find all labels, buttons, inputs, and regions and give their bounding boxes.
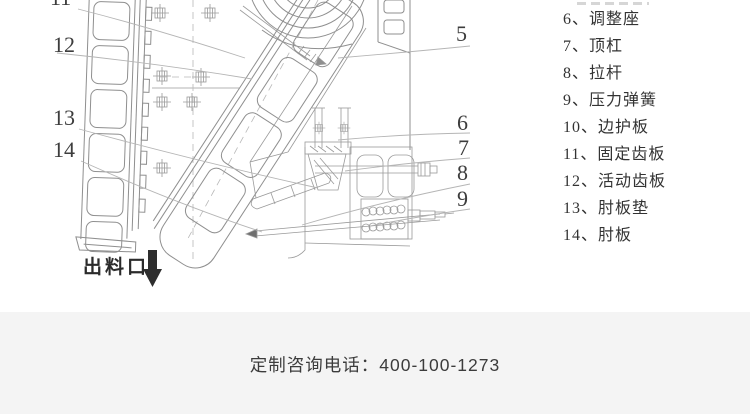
fixed-jaw-frame xyxy=(75,0,152,253)
callout-7: 7 xyxy=(458,137,469,159)
parts-list-item: 8、拉杆 xyxy=(563,60,748,87)
parts-list-item: 6、调整座 xyxy=(563,6,748,33)
leader-lines xyxy=(57,9,470,232)
callout-5: 5 xyxy=(456,23,467,45)
consultation-phone: 定制咨询电话：400-100-1273 xyxy=(0,352,750,377)
page: 11 12 13 14 5 6 7 8 9 出料口 6、调整座 7、顶杠 8、拉… xyxy=(0,0,750,414)
callout-12: 12 xyxy=(53,34,75,56)
callout-14: 14 xyxy=(53,139,75,161)
frame-right xyxy=(378,0,410,150)
callout-8: 8 xyxy=(457,162,468,184)
footer-bar: 定制咨询电话：400-100-1273 xyxy=(0,312,750,414)
discharge-port-label: 出料口 xyxy=(83,252,149,279)
parts-list-item: 7、顶杠 xyxy=(563,33,748,60)
callout-11: 11 xyxy=(50,0,71,9)
callout-6: 6 xyxy=(457,112,468,134)
flywheel xyxy=(248,0,368,49)
construction-lines xyxy=(160,0,318,262)
adjusting-mechanism xyxy=(288,108,414,258)
spring-bolt xyxy=(240,6,326,65)
parts-list-item: 14、肘板 xyxy=(563,222,748,249)
parts-list-item: 11、固定齿板 xyxy=(563,141,748,168)
clipped-list-item xyxy=(577,2,649,5)
toggle-plate xyxy=(251,173,331,209)
tension-rod xyxy=(246,214,440,238)
parts-list-item: 9、压力弹簧 xyxy=(563,87,748,114)
parts-list: 6、调整座 7、顶杠 8、拉杆 9、压力弹簧 10、边护板 11、固定齿板 12… xyxy=(563,6,748,249)
callout-9: 9 xyxy=(457,188,468,210)
parts-list-item: 10、边护板 xyxy=(563,114,748,141)
parts-list-item: 13、肘板垫 xyxy=(563,195,748,222)
parts-list-item: 12、活动齿板 xyxy=(563,168,748,195)
callout-13: 13 xyxy=(53,107,75,129)
